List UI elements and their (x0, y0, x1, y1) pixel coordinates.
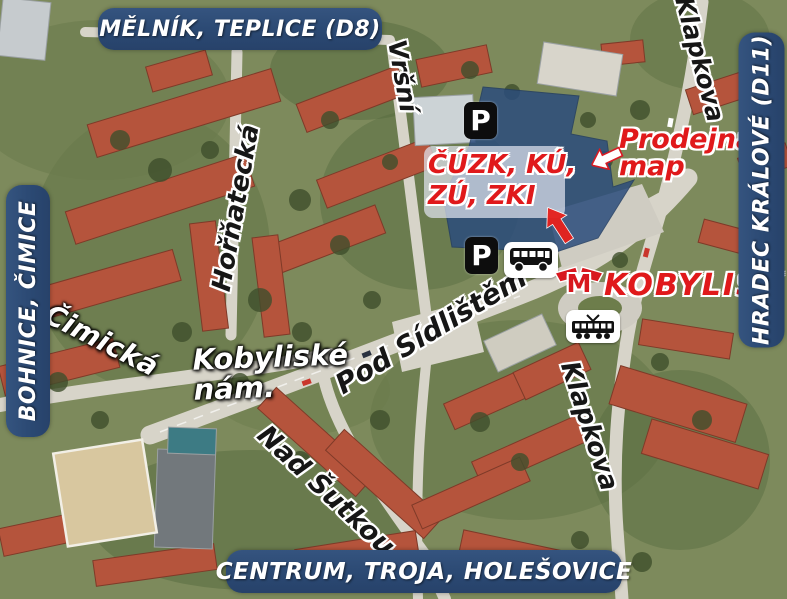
metro-logo-icon: M (553, 264, 605, 302)
map-shop-line2: map (619, 153, 754, 180)
bus-icon (504, 242, 558, 278)
banner-direction-north: MĚLNÍK, TEPLICE (D8) (98, 8, 382, 50)
tram-icon (566, 310, 620, 343)
banner-direction-east: HRADEC KRÁLOVÉ (D11) (739, 33, 785, 348)
map-shop-line1: Prodejna (619, 126, 754, 153)
metro-letter: M (553, 271, 605, 296)
banner-direction-south: CENTRUM, TROJA, HOLEŠOVICE (226, 550, 622, 593)
kobyliske-nam-line2: nám. (193, 370, 350, 406)
parking-icon-north: P (464, 102, 497, 139)
location-map: MĚLNÍK, TEPLICE (D8) BOHNICE, ČIMICE HRA… (0, 0, 787, 599)
banner-direction-west: BOHNICE, ČIMICE (6, 185, 50, 437)
street-label-kobyliske-nam: Kobyliské nám. (192, 339, 350, 405)
map-shop-label: Prodejna map (619, 126, 754, 180)
office-label-line1: ČÚZK, KÚ, (428, 150, 576, 181)
parking-icon-south: P (465, 237, 498, 274)
